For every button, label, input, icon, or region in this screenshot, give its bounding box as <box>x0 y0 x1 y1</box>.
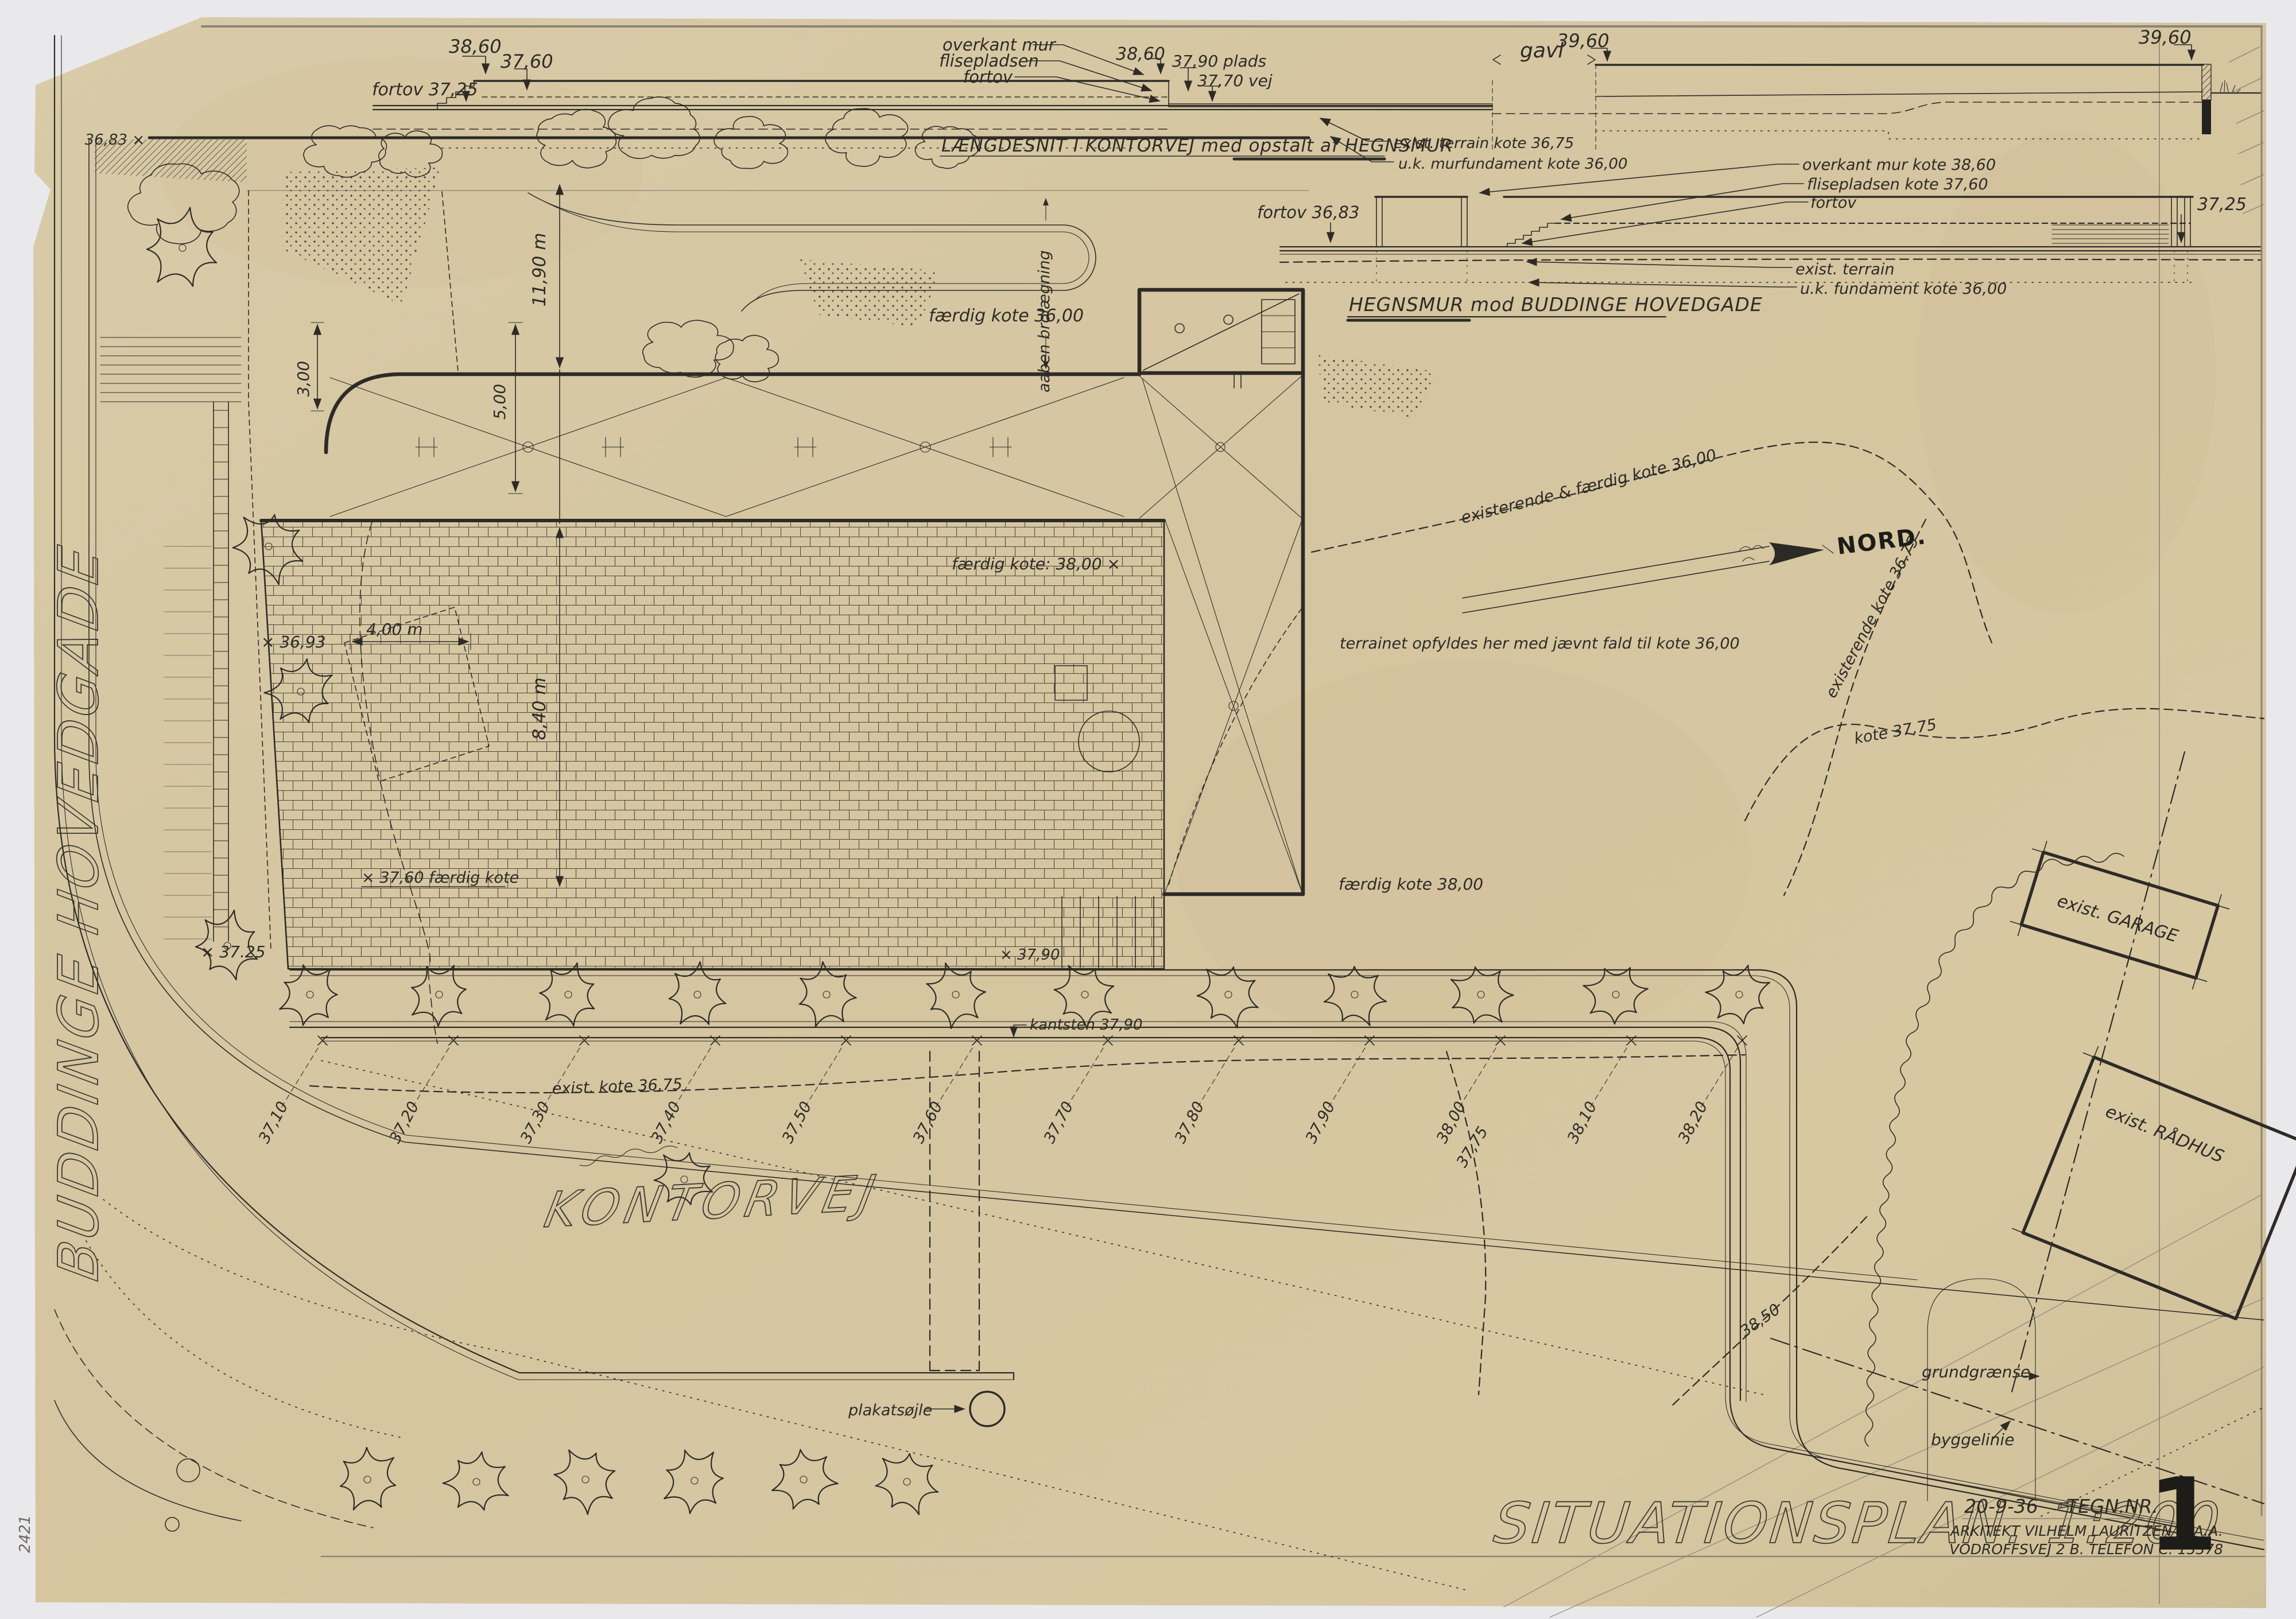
spot-36-93: × 36,93 <box>261 632 326 651</box>
label-38-60-left: 38,60 <box>449 36 502 57</box>
label-uk-fundament: u.k. fundament kote 36,00 <box>1800 280 2007 298</box>
sheet-number: 1 <box>2148 1457 2218 1574</box>
label-flisepladsen-kote: flisepladsen kote 37,60 <box>1807 176 1988 193</box>
dim-3-00: 3,00 <box>294 361 313 397</box>
label-plakatsojle: plakatsøjle <box>848 1401 932 1419</box>
drawing-date: 20-9-36 <box>1964 1495 2038 1517</box>
label-faerdig-37-60: × 37,60 færdig kote <box>362 869 519 887</box>
label-terrain-note: terrainet opfyldes her med jævnt fald ti… <box>1340 635 1740 653</box>
label-37-70-vej: 37,70 vej <box>1197 71 1273 90</box>
label-37-60-left: 37,60 <box>501 51 553 72</box>
label-exist-terrain-36-75: exist. terrain kote 36,75 <box>1394 135 1574 152</box>
dim-8-40: 8,40 m <box>529 677 550 740</box>
spot-37-90: × 37,90 <box>1000 946 1060 964</box>
site-plan-drawing: fortov 37,25 38,60 37,60 overkant mur fl… <box>0 0 2296 1619</box>
section2-title: HEGNSMUR mod BUDDINGE HOVEDGADE <box>1349 293 1763 316</box>
dim-4-00: 4,00 m <box>366 620 423 639</box>
label-37-90-plads: 37,90 plads <box>1172 52 1266 71</box>
label-kantsten: kantsten 37,90 <box>1030 1016 1143 1034</box>
forecourt-plaza <box>261 521 1164 1043</box>
label-39-60-b: 39,60 <box>2139 26 2192 48</box>
label-exist-terrain: exist. terrain <box>1795 261 1894 278</box>
label-fortov: fortov <box>963 67 1013 87</box>
label-faerdig-36: færdig kote 36,00 <box>929 306 1084 326</box>
label-fortov-36-83: fortov 36,83 <box>1257 203 1359 222</box>
label-faerdig-38-plaza: færdig kote: 38,00 × <box>952 554 1120 573</box>
label-38-60-right: 38,60 <box>1116 44 1165 64</box>
label-uk-murfundament: u.k. murfundament kote 36,00 <box>1398 156 1627 173</box>
label-faerdig-38-right: færdig kote 38,00 <box>1339 875 1483 894</box>
dim-11-90: 11,90 m <box>529 233 550 307</box>
label-fortov-2: fortov <box>1810 194 1857 212</box>
label-byggelinie: byggelinie <box>1931 1430 2014 1449</box>
label-37-25-right: 37,25 <box>2197 195 2247 215</box>
tegn-nr-label: TEGN.NR. <box>2066 1495 2158 1517</box>
label-39-60-a: 39,60 <box>1557 30 1609 52</box>
label-overkant-mur-kote: overkant mur kote 38,60 <box>1802 156 1996 174</box>
scanned-drawing-photo: fortov 37,25 38,60 37,60 overkant mur fl… <box>0 0 2296 1619</box>
spot-37-25: × 37.25 <box>201 942 266 961</box>
label-grundgraense: grundgrænse <box>1922 1362 2030 1381</box>
label-fortov-level: fortov 37,25 <box>372 80 478 100</box>
spot-36-83: 36,83 × <box>85 131 145 149</box>
street-name-buddinge: BUDDINGE HOVEDGADE <box>46 539 111 1285</box>
archive-number: 2421 <box>17 1515 34 1553</box>
dim-5-00: 5,00 <box>490 384 509 420</box>
